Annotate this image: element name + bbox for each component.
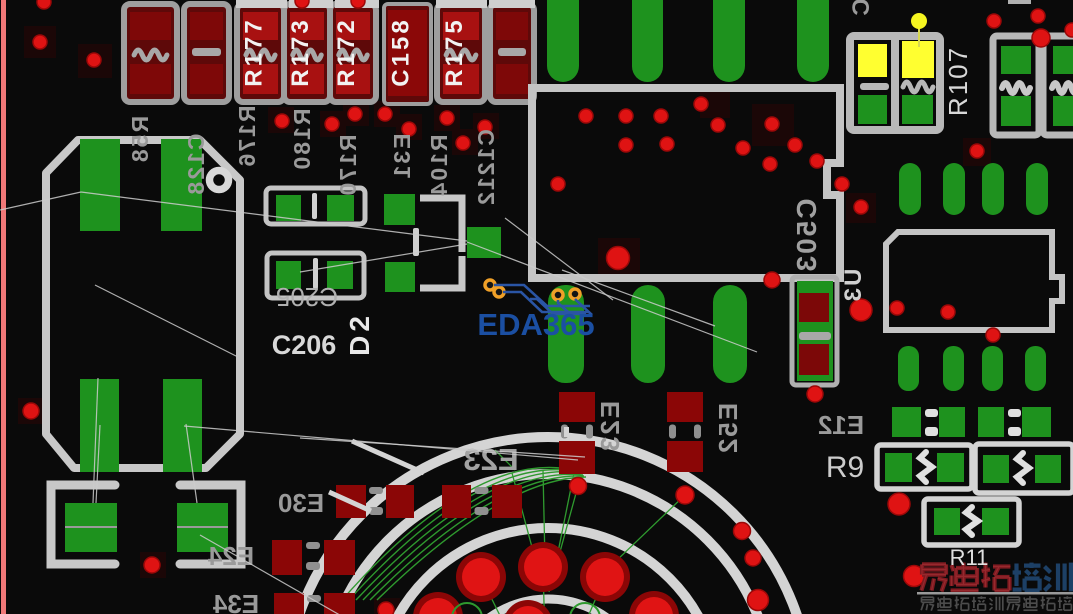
svg-text:E23: E23 — [463, 442, 518, 477]
svg-text:E52: E52 — [713, 403, 743, 455]
svg-text:R104: R104 — [426, 135, 452, 198]
svg-text:R176: R176 — [234, 106, 260, 169]
svg-text:R177: R177 — [241, 17, 268, 86]
svg-text:U3: U3 — [840, 269, 867, 304]
svg-text:R175: R175 — [441, 17, 468, 86]
svg-text:E30: E30 — [278, 488, 324, 518]
svg-text:D2: D2 — [344, 312, 375, 356]
svg-text:E12: E12 — [818, 410, 864, 440]
svg-text:E24: E24 — [207, 541, 254, 571]
svg-text:C158: C158 — [388, 17, 415, 86]
svg-text:R58: R58 — [127, 116, 153, 164]
svg-text:C1212: C1212 — [473, 129, 499, 207]
svg-text:EDA365: EDA365 — [477, 307, 594, 342]
svg-text:R107: R107 — [943, 46, 973, 116]
svg-text:R173: R173 — [287, 17, 314, 86]
svg-text:R170: R170 — [335, 135, 361, 198]
svg-text:E31: E31 — [389, 134, 415, 181]
svg-text:C503: C503 — [791, 199, 822, 274]
svg-text:C205: C205 — [276, 282, 338, 312]
svg-text:R172: R172 — [333, 17, 360, 86]
svg-text:R11: R11 — [950, 545, 989, 570]
svg-text:C128: C128 — [183, 134, 209, 197]
svg-text:C206: C206 — [272, 330, 337, 360]
svg-text:C: C — [848, 0, 875, 18]
svg-text:R180: R180 — [289, 109, 315, 172]
svg-text:E34: E34 — [212, 589, 259, 614]
svg-text:R9: R9 — [826, 451, 864, 484]
svg-text:E23: E23 — [595, 401, 625, 453]
